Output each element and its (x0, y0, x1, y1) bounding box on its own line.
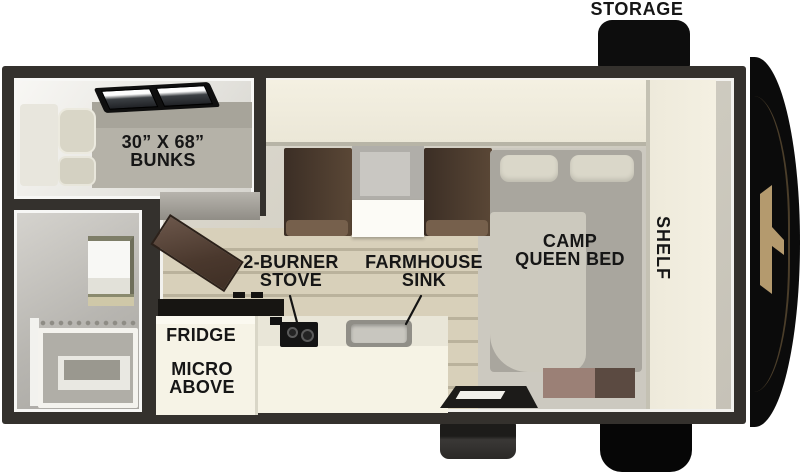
stove-controls (270, 317, 282, 325)
sink-label: FARMHOUSE SINK (354, 254, 494, 289)
bathtub-basin (64, 360, 120, 380)
stove-burner-icon (301, 329, 314, 342)
overhead-cabinet (160, 192, 260, 220)
stove-label-line1: 2-BURNER (221, 254, 361, 272)
nightstand-left (543, 368, 595, 398)
storage-label: STORAGE (557, 1, 717, 19)
bathroom-window (88, 236, 134, 294)
skylight-pane (156, 85, 214, 107)
front-storage-compartment (600, 418, 692, 472)
roof-storage-compartment (598, 20, 690, 70)
stove-label-line2: STOVE (221, 272, 361, 290)
bunks-label-line1: 30” X 68” (83, 134, 243, 152)
wall-bunkroom-bathroom (2, 199, 142, 210)
dinette-window-pane (360, 152, 410, 196)
nightstand-right (595, 368, 635, 398)
entry-step (440, 422, 516, 459)
sink-label-line2: SINK (354, 272, 494, 290)
brand-logo-icon (752, 180, 786, 300)
cabinet-handle (251, 292, 263, 298)
shower-curtain-track (39, 320, 137, 327)
cabinet-handle (233, 292, 245, 298)
bed-pillow-left (500, 155, 558, 182)
stove-burner-icon (287, 327, 298, 338)
dinette-armrest-left (286, 220, 348, 236)
shelf-label: SHELF (651, 198, 671, 298)
bunks-label-line2: BUNKS (83, 152, 243, 170)
bunk-side-cushion (20, 104, 58, 186)
bed-label-line2: QUEEN BED (500, 251, 640, 269)
floorplan-canvas: STORAGE (0, 0, 800, 472)
sink-basin (351, 324, 407, 343)
fridge-label: FRIDGE (156, 327, 246, 345)
micro-label: MICRO ABOVE (156, 361, 248, 396)
sink-label-line1: FARMHOUSE (354, 254, 494, 272)
micro-label-line1: MICRO (156, 361, 248, 379)
bed-pillow-right (570, 155, 634, 182)
dinette-armrest-right (426, 220, 488, 236)
micro-label-line2: ABOVE (156, 379, 248, 397)
dinette-table (352, 200, 424, 237)
bed-label: CAMP QUEEN BED (500, 233, 640, 268)
bathroom-shelf (88, 294, 134, 306)
bed-label-line1: CAMP (500, 233, 640, 251)
entry-mat-step (456, 391, 506, 399)
bunks-label: 30” X 68” BUNKS (83, 134, 243, 169)
stove-label: 2-BURNER STOVE (221, 254, 361, 289)
skylight-pane (101, 88, 159, 110)
